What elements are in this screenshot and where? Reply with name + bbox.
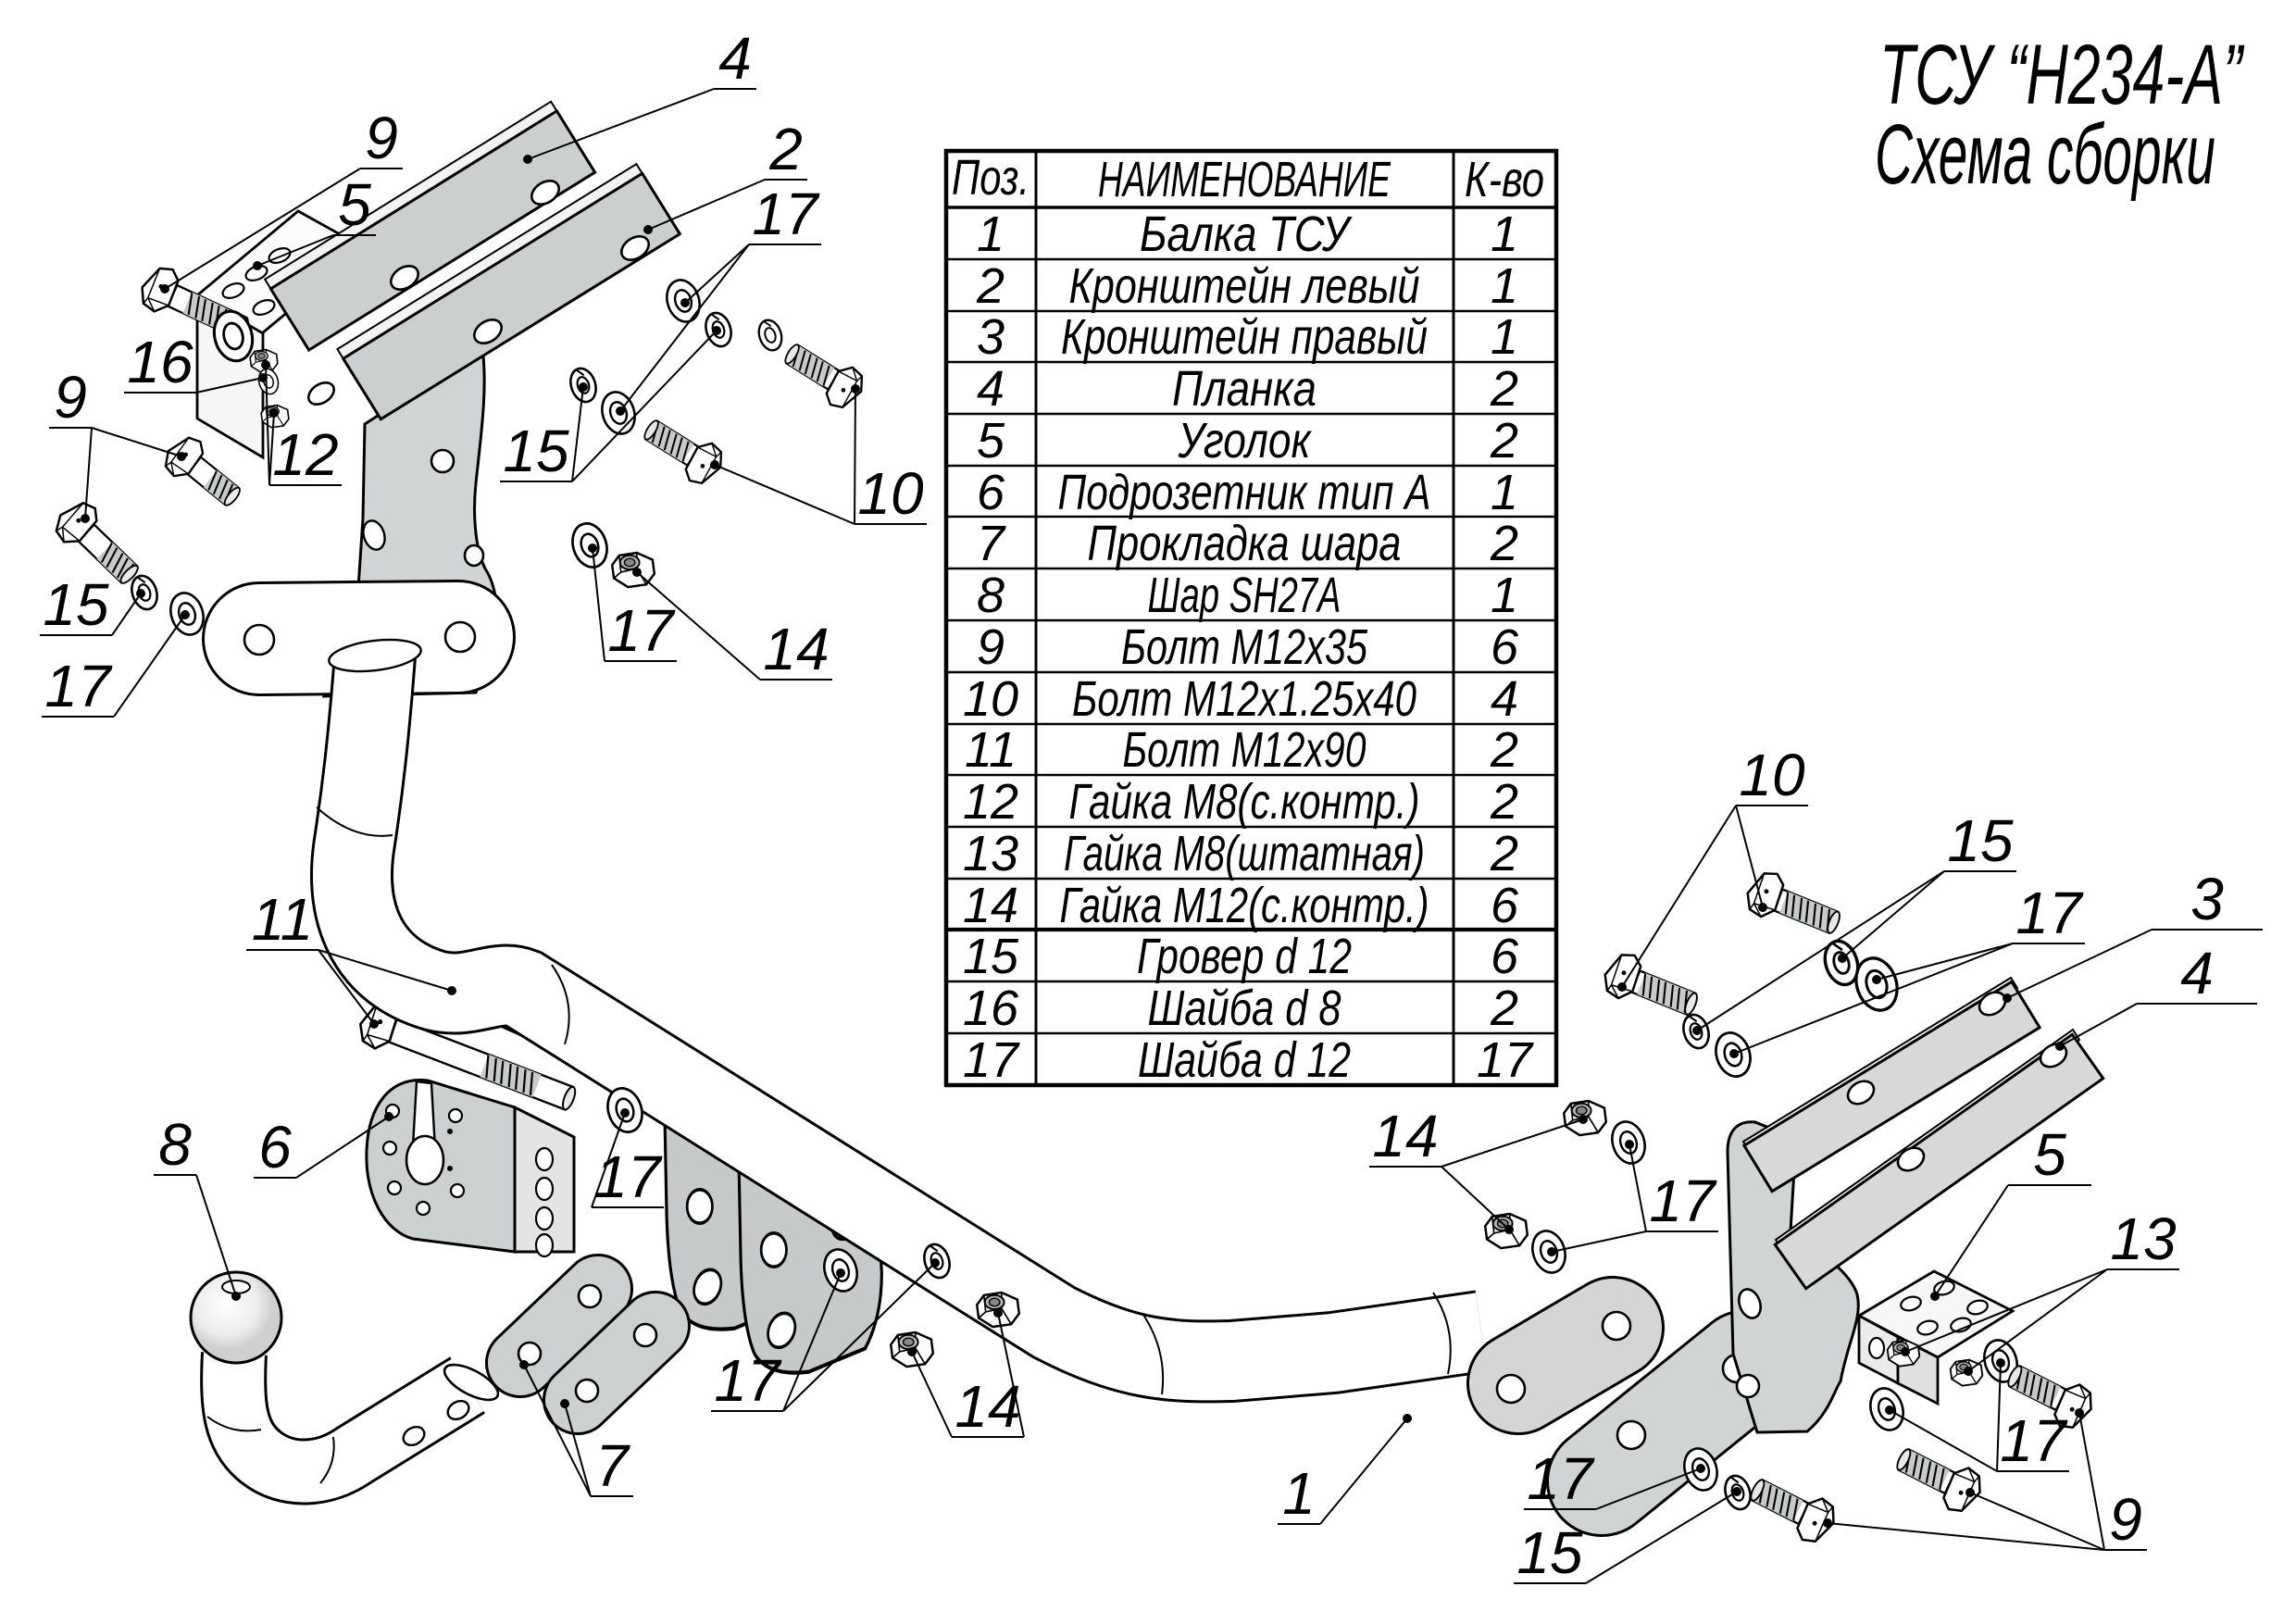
svg-text:6: 6 [1491, 929, 1519, 984]
svg-text:4: 4 [718, 25, 752, 92]
svg-text:2: 2 [1490, 516, 1518, 571]
svg-text:17: 17 [1477, 1032, 1534, 1088]
svg-text:6: 6 [1491, 878, 1519, 933]
svg-text:2: 2 [1490, 774, 1518, 830]
svg-text:Гровер d 12: Гровер d 12 [1137, 929, 1352, 984]
svg-text:15: 15 [43, 571, 109, 638]
svg-text:11: 11 [965, 722, 1017, 778]
svg-text:1: 1 [1491, 309, 1518, 365]
svg-text:15: 15 [1516, 1519, 1583, 1586]
svg-text:17: 17 [44, 653, 113, 719]
svg-text:Поз.: Поз. [952, 150, 1029, 206]
svg-text:НАИМЕНОВАНИЕ: НАИМЕНОВАНИЕ [1098, 152, 1391, 207]
svg-text:Болт М12х1.25х40: Болт М12х1.25х40 [1072, 671, 1416, 727]
svg-text:16: 16 [127, 329, 193, 395]
svg-text:Балка ТСУ: Балка ТСУ [1140, 206, 1353, 262]
svg-text:8: 8 [977, 568, 1004, 623]
svg-text:17: 17 [1527, 1445, 1595, 1512]
svg-text:12: 12 [272, 421, 338, 488]
svg-text:1: 1 [1491, 258, 1518, 314]
svg-text:15: 15 [1947, 807, 2014, 874]
svg-text:1: 1 [1491, 568, 1518, 623]
svg-text:9: 9 [977, 619, 1004, 675]
svg-text:17: 17 [2015, 880, 2084, 946]
svg-text:1: 1 [977, 206, 1004, 262]
svg-text:2: 2 [976, 258, 1004, 314]
svg-text:17: 17 [714, 1347, 782, 1414]
svg-text:1: 1 [1491, 465, 1518, 520]
svg-text:2: 2 [1490, 361, 1518, 417]
svg-text:Уголок: Уголок [1178, 413, 1313, 468]
svg-text:2: 2 [1490, 826, 1518, 881]
svg-text:17: 17 [752, 181, 820, 247]
svg-text:Кронштейн левый: Кронштейн левый [1069, 258, 1420, 314]
svg-text:7: 7 [595, 1432, 630, 1499]
svg-text:11: 11 [252, 886, 313, 953]
svg-text:Планка: Планка [1172, 361, 1316, 417]
svg-text:3: 3 [2190, 866, 2224, 932]
svg-text:Схема сборки: Схема сборки [1875, 107, 2215, 202]
svg-text:2: 2 [1490, 413, 1518, 468]
svg-text:14: 14 [963, 878, 1018, 933]
svg-text:5: 5 [2033, 1121, 2066, 1188]
svg-text:5: 5 [338, 171, 371, 238]
svg-text:2: 2 [1490, 981, 1518, 1036]
svg-text:Болт М12х90: Болт М12х90 [1123, 722, 1366, 778]
svg-text:2: 2 [768, 116, 803, 182]
svg-text:8: 8 [158, 1111, 192, 1178]
svg-text:1: 1 [1491, 206, 1518, 262]
svg-text:Подрозетник тип А: Подрозетник тип А [1058, 465, 1431, 520]
svg-text:Шайба d 8: Шайба d 8 [1148, 981, 1341, 1036]
svg-text:2: 2 [1490, 722, 1518, 778]
svg-text:17: 17 [2000, 1407, 2068, 1474]
svg-text:10: 10 [963, 671, 1018, 727]
svg-text:Шайба d 12: Шайба d 12 [1138, 1032, 1351, 1088]
svg-text:Болт М12х35: Болт М12х35 [1121, 619, 1368, 675]
svg-text:Гайка М12(с.контр.): Гайка М12(с.контр.) [1060, 878, 1429, 933]
svg-text:4: 4 [2180, 940, 2214, 1006]
svg-text:17: 17 [594, 1143, 663, 1210]
svg-text:9: 9 [54, 364, 87, 431]
svg-text:9: 9 [365, 105, 398, 171]
svg-text:6: 6 [977, 465, 1005, 520]
svg-text:4: 4 [977, 361, 1004, 417]
svg-text:Гайка М8(с.контр.): Гайка М8(с.контр.) [1069, 774, 1420, 830]
svg-text:16: 16 [963, 981, 1019, 1036]
svg-text:17: 17 [963, 1032, 1020, 1088]
svg-text:3: 3 [977, 309, 1004, 365]
svg-text:13: 13 [963, 826, 1018, 881]
svg-text:14: 14 [763, 616, 829, 682]
svg-text:12: 12 [963, 774, 1018, 830]
svg-text:13: 13 [2110, 1206, 2177, 1272]
svg-text:Шар SH27A: Шар SH27A [1148, 568, 1341, 623]
svg-text:5: 5 [977, 413, 1005, 468]
svg-text:17: 17 [1649, 1168, 1717, 1234]
svg-text:1: 1 [1282, 1460, 1316, 1527]
svg-text:6: 6 [258, 1114, 292, 1181]
svg-text:6: 6 [1491, 619, 1519, 675]
svg-text:Прокладка шара: Прокладка шара [1088, 516, 1402, 571]
svg-text:15: 15 [963, 929, 1019, 984]
svg-text:Кронштейн правый: Кронштейн правый [1061, 309, 1428, 365]
svg-text:10: 10 [1739, 742, 1805, 808]
svg-text:14: 14 [955, 1373, 1020, 1440]
svg-text:К-во: К-во [1465, 152, 1544, 207]
svg-text:14: 14 [1372, 1103, 1438, 1169]
svg-text:15: 15 [503, 418, 569, 484]
svg-text:17: 17 [607, 597, 676, 664]
svg-text:7: 7 [977, 516, 1006, 571]
svg-text:Гайка М8(штатная): Гайка М8(штатная) [1064, 826, 1425, 881]
svg-text:4: 4 [1491, 671, 1518, 727]
svg-text:9: 9 [2109, 1486, 2142, 1553]
svg-text:10: 10 [857, 460, 924, 527]
